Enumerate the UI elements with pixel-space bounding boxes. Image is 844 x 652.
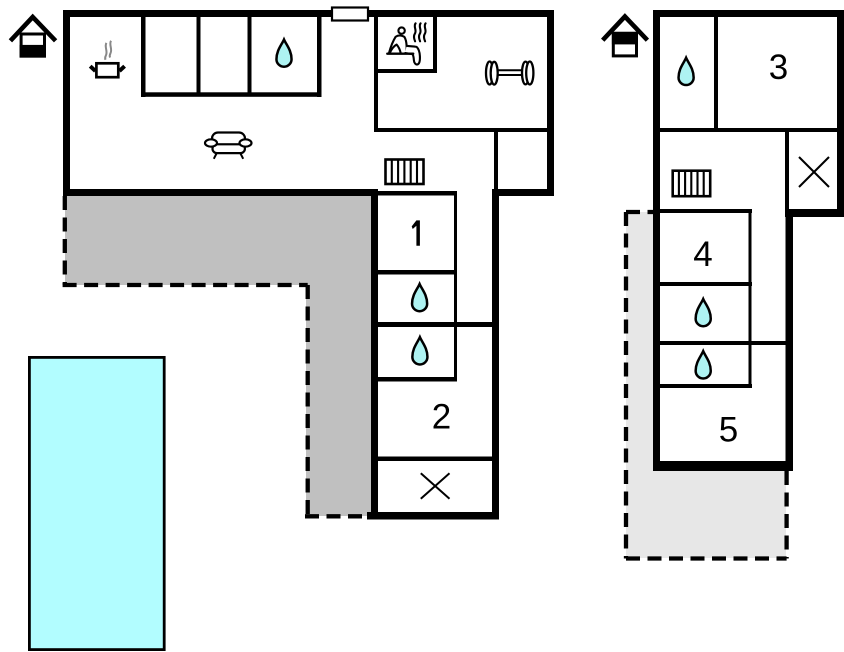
- svg-text:4: 4: [693, 235, 712, 274]
- svg-text:2: 2: [432, 398, 451, 437]
- svg-text:5: 5: [719, 411, 738, 450]
- svg-text:3: 3: [769, 48, 788, 87]
